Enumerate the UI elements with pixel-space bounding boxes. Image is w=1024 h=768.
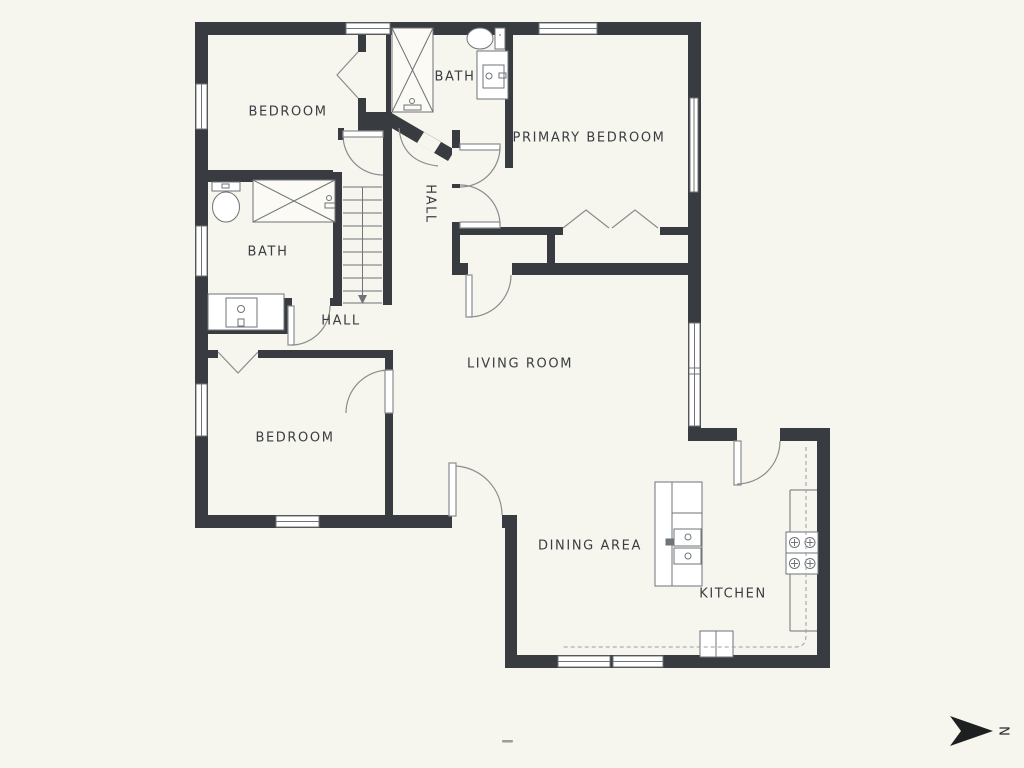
room-label-kitchen: KITCHEN: [699, 587, 767, 602]
bedroom-2-door: [346, 370, 393, 413]
floorplan-drawing: N: [0, 0, 1024, 768]
room-label-bedroom-2: BEDROOM: [255, 431, 334, 446]
windows-group: [196, 23, 700, 667]
toilet-icon-bath2: [212, 182, 240, 222]
wall-stairs-right: [383, 132, 392, 305]
room-label-dining-area: DINING AREA: [538, 539, 642, 554]
window-bedroom2: [276, 516, 319, 527]
bathtub-icon: [253, 180, 335, 222]
hall-to-primary-door-lower: [460, 185, 500, 228]
stair-hall-door: [343, 131, 383, 175]
bedroom2-closet-bifold-door: [218, 352, 258, 373]
wall-living-top-right: [512, 263, 701, 275]
wall-exterior-top: [195, 22, 701, 35]
front-entry-door: [449, 463, 502, 516]
wall-bedroom2-top-left: [208, 350, 218, 358]
wall-bedroom1-right-b: [358, 98, 366, 114]
kitchen-counter-box: [700, 631, 733, 657]
range-stove-icon: [786, 532, 818, 574]
toilet-icon-bath1: [467, 28, 505, 49]
room-label-primary-bedroom: PRIMARY BEDROOM: [513, 131, 666, 146]
wall-exterior-bottom: [505, 655, 830, 668]
wall-living-top-left: [452, 263, 468, 275]
small-dash-mark: [502, 740, 513, 743]
wall-bedroom2-right-b: [385, 413, 393, 515]
wall-hall-primary-a: [452, 130, 460, 148]
bedroom-1-door: [337, 52, 358, 98]
shower-tub-icon: [392, 28, 433, 112]
wall-primary-bottom-right: [660, 227, 701, 235]
wall-shower-left: [386, 26, 391, 114]
wall-diagonal: [383, 112, 455, 161]
wall-dining-left: [505, 515, 517, 668]
north-arrow-icon: [950, 716, 993, 746]
vanity-sink-icon-bath1: [477, 51, 508, 99]
window-top-2: [539, 23, 597, 34]
window-dining-1: [558, 656, 610, 667]
room-label-hall-upper: HALL: [423, 184, 438, 224]
room-label-living-room: LIVING ROOM: [467, 357, 573, 372]
kitchen-door: [734, 441, 780, 485]
window-left-2: [196, 226, 207, 276]
room-label-bath-1: BATH: [435, 70, 476, 85]
room-label-bedroom-1: BEDROOM: [248, 105, 327, 120]
wall-hall-primary-b: [452, 184, 460, 188]
floor-plan: N BEDROOM BATH PRIMARY BEDROOM HALL BATH…: [0, 0, 1024, 768]
window-top-1: [346, 23, 390, 34]
wall-bath2-door-right: [330, 298, 342, 306]
room-label-hall-lower: HALL: [321, 314, 361, 329]
window-dining-2: [613, 656, 663, 667]
stairs-icon: [343, 187, 382, 304]
compass: N: [950, 716, 1011, 746]
wall-closet-divider: [547, 235, 555, 263]
room-label-bath-2: BATH: [248, 245, 289, 260]
vanity-sink-icon-bath2: [208, 294, 284, 330]
wall-bedroom2-top: [258, 350, 392, 358]
window-right-thin: [690, 98, 698, 192]
window-left-3: [196, 384, 207, 436]
living-room-closet-door: [466, 275, 511, 317]
hall-to-primary-door-upper: [460, 144, 500, 187]
kitchen-island-icon: [655, 482, 702, 586]
wall-bedroom2-right-a: [385, 350, 393, 370]
window-left-1: [196, 84, 207, 129]
window-right-living: [689, 323, 700, 426]
primary-closet-bifold-doors: [563, 210, 658, 228]
door-gaps: [292, 132, 780, 528]
compass-letter: N: [996, 726, 1011, 736]
wall-kitchen-right: [817, 428, 830, 668]
